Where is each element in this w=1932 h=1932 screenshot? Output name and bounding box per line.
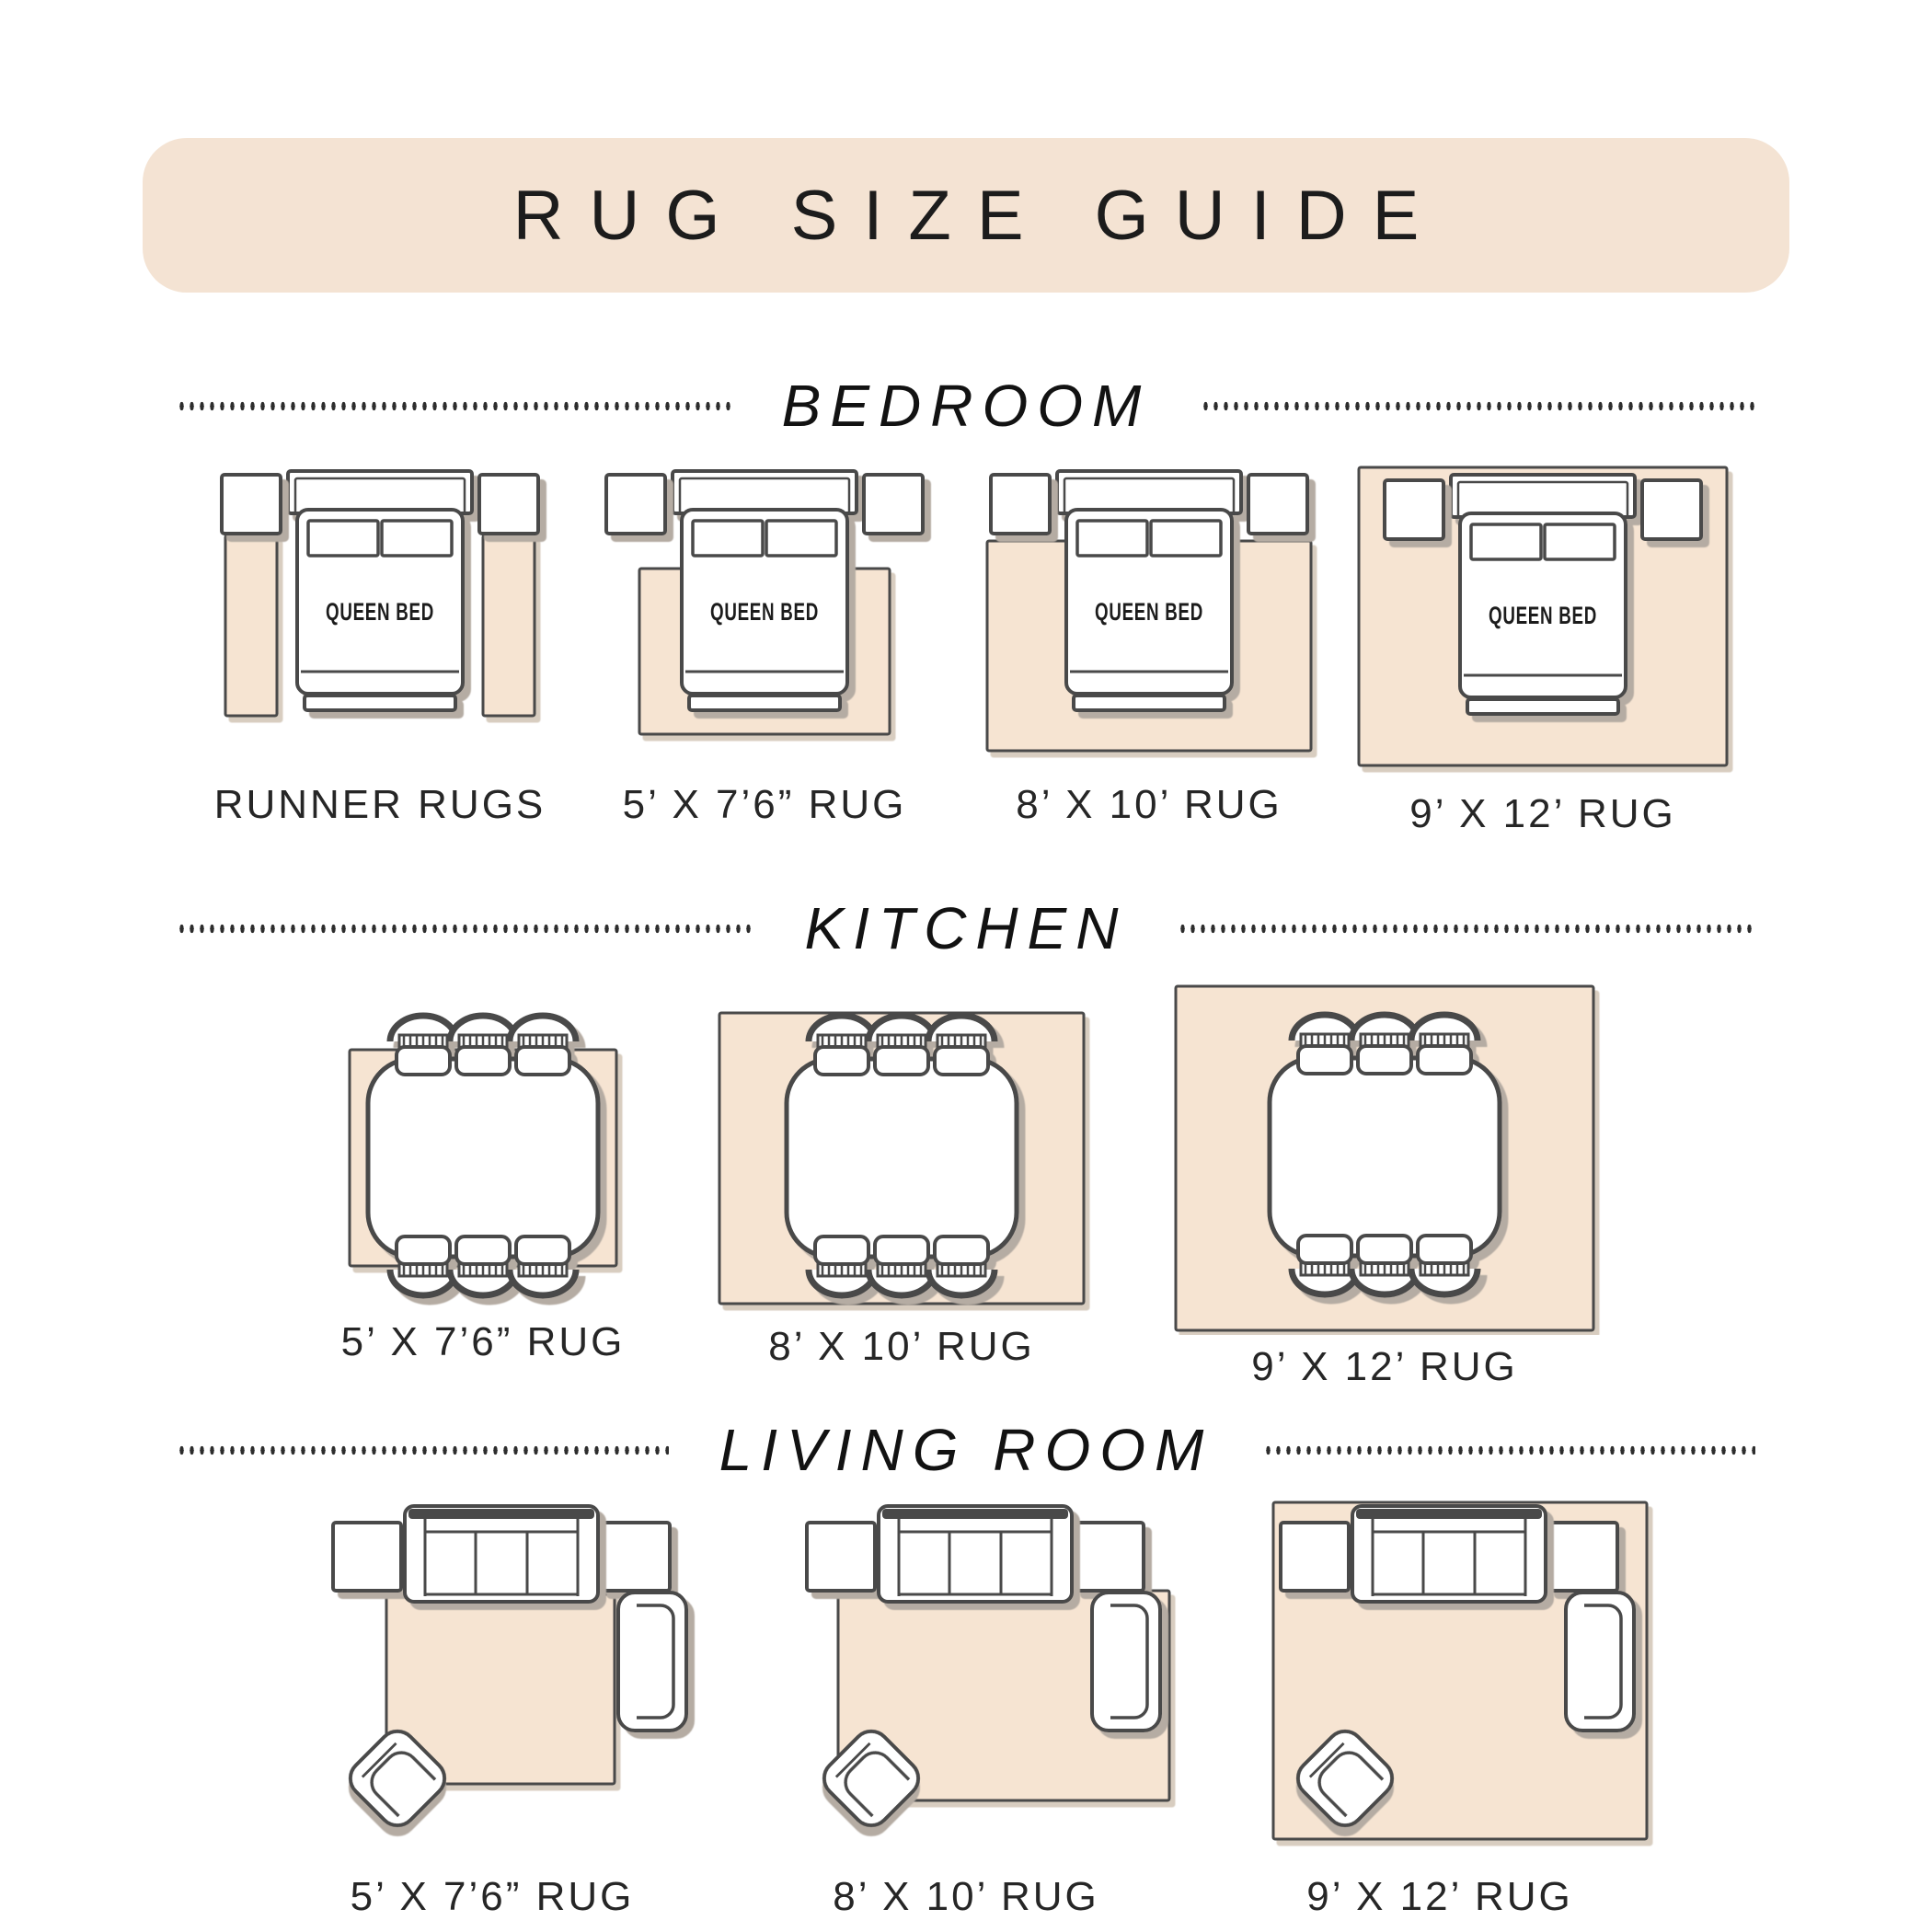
- dining-table-icon: [1270, 1015, 1500, 1294]
- nightstand-icon: [991, 475, 1050, 534]
- rug-size-label: 5’ X 7’6” RUG: [341, 1319, 626, 1365]
- living-5x76-cell: 5’ X 7’6” RUG: [276, 1497, 708, 1920]
- section-title-kitchen: KITCHEN: [805, 894, 1128, 962]
- page-title: RUG SIZE GUIDE: [488, 176, 1445, 256]
- kitchen-section-header: KITCHEN: [0, 894, 1932, 962]
- dotted-line: [1178, 923, 1755, 935]
- rug-size-label: 8’ X 10’ RUG: [833, 1874, 1099, 1920]
- kitchen-row: 5’ X 7’6” RUG 8’ X 10’ RUG 9’ X 12’ RUG: [0, 981, 1932, 1390]
- bedroom-8x10-diagram: [965, 460, 1333, 773]
- nightstand-icon: [864, 475, 923, 534]
- kitchen-9x12-cell: 9’ X 12’ RUG: [1168, 981, 1601, 1390]
- dotted-line: [177, 923, 754, 935]
- living-8x10-diagram: [750, 1497, 1182, 1865]
- kitchen-5x76-diagram: [331, 1006, 635, 1310]
- section-title-living-room: LIVING ROOM: [719, 1416, 1213, 1484]
- rug-size-label: 8’ X 10’ RUG: [768, 1324, 1035, 1370]
- nightstand-icon: [1385, 480, 1443, 539]
- runner-rug-icon: [225, 535, 277, 716]
- rug-size-guide-page: RUG SIZE GUIDE BEDROOM RUNNER RUGS: [0, 0, 1932, 1932]
- dining-table-icon: [787, 1016, 1017, 1295]
- rug-size-label: 5’ X 7’6” RUG: [623, 782, 907, 828]
- rug-size-label: RUNNER RUGS: [214, 782, 546, 828]
- kitchen-5x76-cell: 5’ X 7’6” RUG: [331, 1006, 635, 1365]
- rug-size-label: 8’ X 10’ RUG: [1016, 782, 1282, 828]
- bedroom-row: RUNNER RUGS 5’ X 7’6” RUG 8’ X 10’ RUG: [0, 460, 1932, 837]
- queen-bed-icon: [1057, 471, 1241, 710]
- rug-size-label: 9’ X 12’ RUG: [1306, 1874, 1573, 1920]
- section-title-bedroom: BEDROOM: [782, 372, 1151, 440]
- rug-size-label: 9’ X 12’ RUG: [1251, 1344, 1518, 1390]
- rug-size-label: 5’ X 7’6” RUG: [351, 1874, 635, 1920]
- dotted-line: [177, 1444, 669, 1456]
- dining-table-icon: [368, 1016, 598, 1295]
- bedroom-8x10-cell: 8’ X 10’ RUG: [965, 460, 1333, 828]
- runner-rug-icon: [483, 535, 535, 716]
- living-5x76-diagram: [276, 1497, 708, 1865]
- nightstand-icon: [222, 475, 281, 534]
- queen-bed-icon: [288, 471, 472, 710]
- bedroom-5x76-cell: 5’ X 7’6” RUG: [581, 460, 949, 828]
- dotted-line: [1201, 400, 1755, 412]
- title-banner: RUG SIZE GUIDE: [143, 138, 1789, 293]
- living-room-row: 5’ X 7’6” RUG 8’ X 10’ RUG 9’ X 12’ RUG: [0, 1497, 1932, 1920]
- nightstand-icon: [1642, 480, 1701, 539]
- bedroom-9x12-diagram: [1350, 460, 1736, 782]
- nightstand-icon: [606, 475, 665, 534]
- nightstand-icon: [1248, 475, 1307, 534]
- bedroom-5x76-diagram: [581, 460, 949, 773]
- rug-size-label: 9’ X 12’ RUG: [1409, 791, 1676, 837]
- living-9x12-cell: 9’ X 12’ RUG: [1224, 1497, 1656, 1920]
- dotted-line: [1263, 1444, 1755, 1456]
- kitchen-9x12-diagram: [1168, 981, 1601, 1335]
- bedroom-runner-cell: RUNNER RUGS: [196, 460, 564, 828]
- nightstand-icon: [479, 475, 538, 534]
- living-8x10-cell: 8’ X 10’ RUG: [750, 1497, 1182, 1920]
- queen-bed-icon: [1451, 475, 1635, 714]
- bedroom-section-header: BEDROOM: [0, 372, 1932, 440]
- bedroom-runner-diagram: [196, 460, 564, 773]
- kitchen-8x10-diagram: [708, 1002, 1095, 1315]
- queen-bed-icon: [673, 471, 857, 710]
- living-9x12-diagram: [1224, 1497, 1656, 1865]
- bedroom-9x12-cell: 9’ X 12’ RUG: [1350, 460, 1736, 837]
- dotted-line: [177, 400, 731, 412]
- living-room-section-header: LIVING ROOM: [0, 1416, 1932, 1484]
- kitchen-8x10-cell: 8’ X 10’ RUG: [708, 1002, 1095, 1370]
